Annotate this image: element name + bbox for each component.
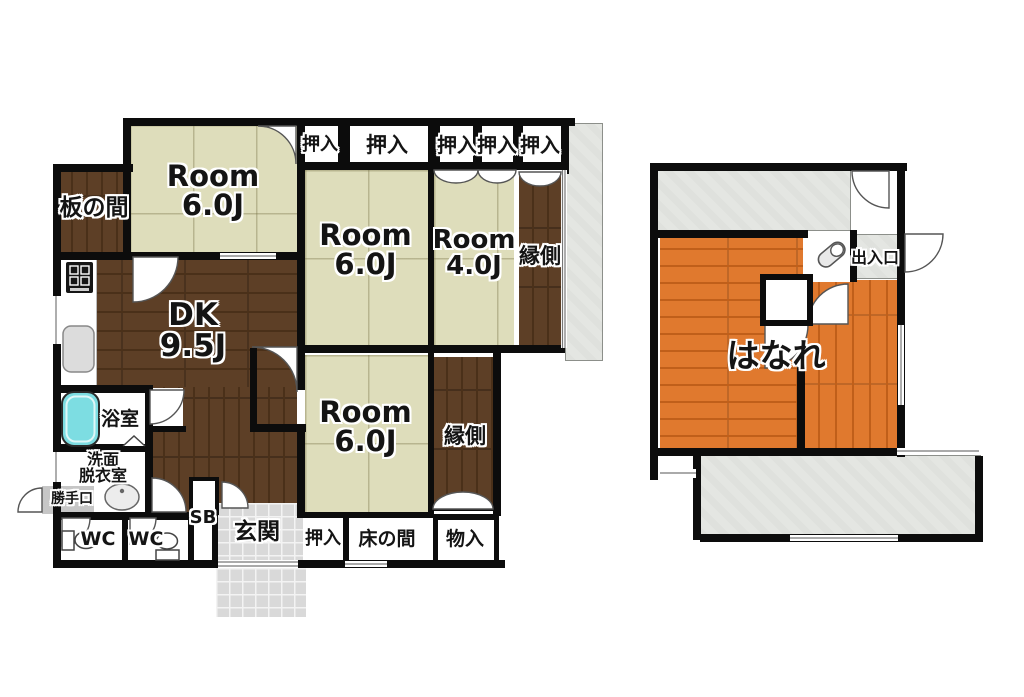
bathtub-icon — [62, 392, 99, 446]
hanare-closet — [763, 277, 810, 323]
floor-plan: 板の間 Room 6.0J 押入 押入 押入 押入 押入 Room 6.0J R… — [0, 0, 1024, 697]
sink-icon — [63, 326, 94, 372]
slipper-icon — [815, 239, 848, 270]
door-arcs — [18, 126, 943, 546]
plan-linework — [0, 0, 1024, 697]
stove-icon — [66, 262, 93, 293]
washbasin-icon — [105, 484, 139, 510]
shoe-box-cabinet — [191, 479, 217, 513]
toilet-icon — [156, 533, 179, 560]
toilet-icon — [62, 531, 97, 550]
